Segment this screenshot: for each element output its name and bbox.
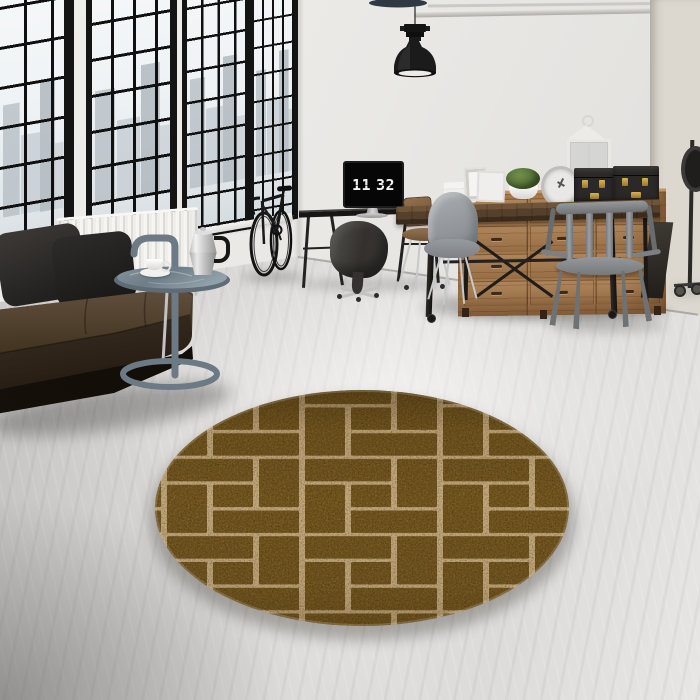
caster-wheel (337, 294, 342, 299)
brass-lock (590, 193, 599, 199)
brass-clasp (622, 178, 628, 186)
sideboard-leg (462, 308, 469, 317)
caster-wheel (404, 285, 409, 290)
flip-clock-monitor: 11 32 (343, 161, 404, 208)
lantern-ring (582, 115, 594, 127)
eames-chair-seat (424, 239, 480, 258)
table-caster (608, 310, 617, 319)
tolix-chair-seat (556, 257, 644, 275)
caster-wheel (356, 297, 361, 302)
tolix-slat (586, 211, 593, 260)
moka-pot (183, 227, 223, 275)
caster-wheel (374, 293, 379, 298)
moka-pot-knob (200, 227, 206, 231)
clock-minutes: 32 (376, 176, 395, 194)
clock-hours: 11 (352, 176, 371, 194)
monitor-base (356, 213, 388, 218)
brass-clasp (642, 178, 648, 186)
rolling-lamp-wheel (674, 285, 686, 297)
tolix-slat (606, 210, 613, 259)
loft-room-scene: 11 32 (0, 0, 700, 700)
rolling-lamp-wheel (691, 283, 700, 295)
tolix-slat (626, 209, 633, 258)
pendant-lamp (366, 0, 444, 86)
round-brick-rug (150, 386, 574, 636)
sideboard-leg (540, 310, 547, 319)
brass-clasp (599, 180, 605, 188)
table-caster (427, 314, 436, 323)
picture-frame (476, 171, 505, 203)
brass-lock (631, 192, 641, 198)
sideboard-leg (654, 306, 661, 315)
storage-trunk (574, 168, 614, 205)
cup-handle (160, 261, 171, 272)
moss-plant (506, 168, 540, 189)
draped-jacket (330, 221, 388, 278)
brass-clasp (582, 180, 588, 188)
